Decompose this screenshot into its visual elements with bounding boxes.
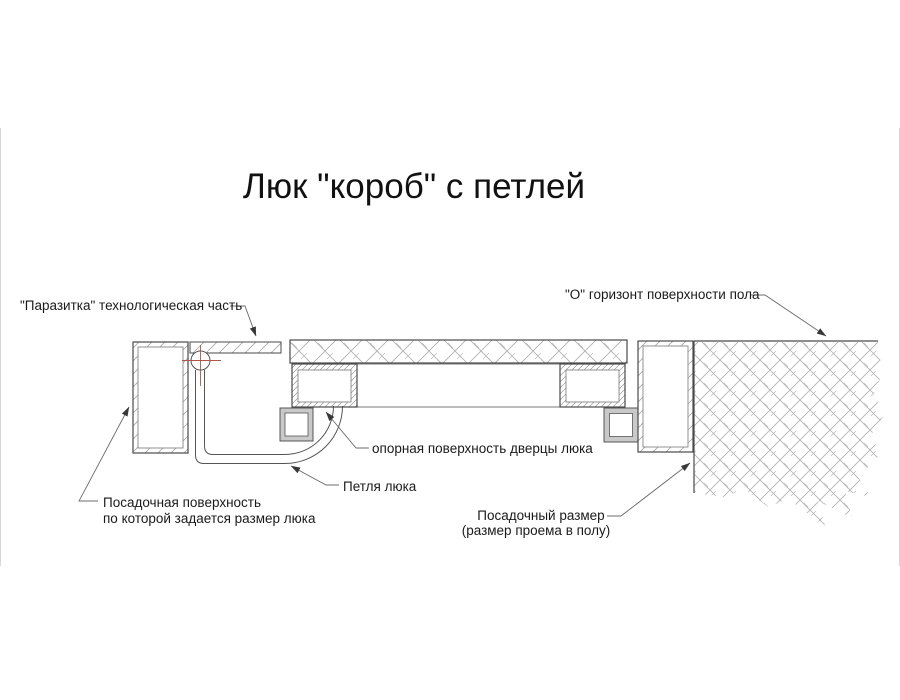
door-pan-left-profile-hatch <box>292 364 357 407</box>
hinge-label: Петля люка <box>343 479 417 494</box>
drawing-title: Люк "короб" с петлей <box>243 167 585 206</box>
right-frame-wall-hatch <box>638 341 693 452</box>
hinge-strap-outer-line <box>196 370 343 464</box>
technical-drawing-page: Люк "короб" с петлей <box>0 0 900 700</box>
right-frame-profile <box>638 341 693 452</box>
hinge-leader-line <box>291 466 339 485</box>
door-pan-middle-cavity <box>357 364 560 407</box>
door-pan-left-profile-inner <box>298 370 351 402</box>
door-pan-right-profile-hatch <box>560 364 625 407</box>
seating-surface-leader-line <box>79 407 129 501</box>
seating-size-label-line1: Посадочный размер <box>477 508 604 523</box>
horizon-leader-line <box>751 295 826 336</box>
horizon-label: "О" горизонт поверхности пола <box>565 287 760 302</box>
seating-size-leader-line <box>607 463 690 516</box>
hinge-strap-inner-line <box>205 370 334 455</box>
left-frame-wall-hatch <box>133 342 188 453</box>
seating-surface-label-line2: по которой задается размер люка <box>103 511 316 526</box>
left-foot-inner <box>285 413 308 436</box>
floor-hatch-area <box>694 342 886 526</box>
door-pan <box>292 364 625 407</box>
door-tile-slab <box>290 340 627 363</box>
hatch-section-drawing: Люк "короб" с петлей <box>0 0 900 700</box>
door-pan-right-profile-outer <box>560 364 625 407</box>
left-frame-outer <box>133 342 188 453</box>
door-pan-right-profile-inner <box>566 370 619 402</box>
right-foot-inner <box>610 414 633 437</box>
seating-size-label-line2: (размер проема в полу) <box>462 523 611 538</box>
door-tile-slab-body <box>290 340 627 363</box>
door-pan-left-profile-outer <box>292 364 357 407</box>
left-frame-profile <box>133 342 188 453</box>
hinge-strap <box>196 370 343 464</box>
right-frame-inner <box>643 346 688 447</box>
parasitka-label: "Паразитка" технологическая часть <box>20 298 242 313</box>
right-frame-outer <box>638 341 693 452</box>
annotation-labels: "Паразитка" технологическая часть "О" го… <box>20 287 760 538</box>
floor-slab <box>694 341 886 526</box>
seating-surface-label-line1: Посадочная поверхность <box>103 495 261 510</box>
left-frame-inner <box>138 347 183 448</box>
support-surface-label: опорная поверхность дверцы люка <box>372 441 593 456</box>
